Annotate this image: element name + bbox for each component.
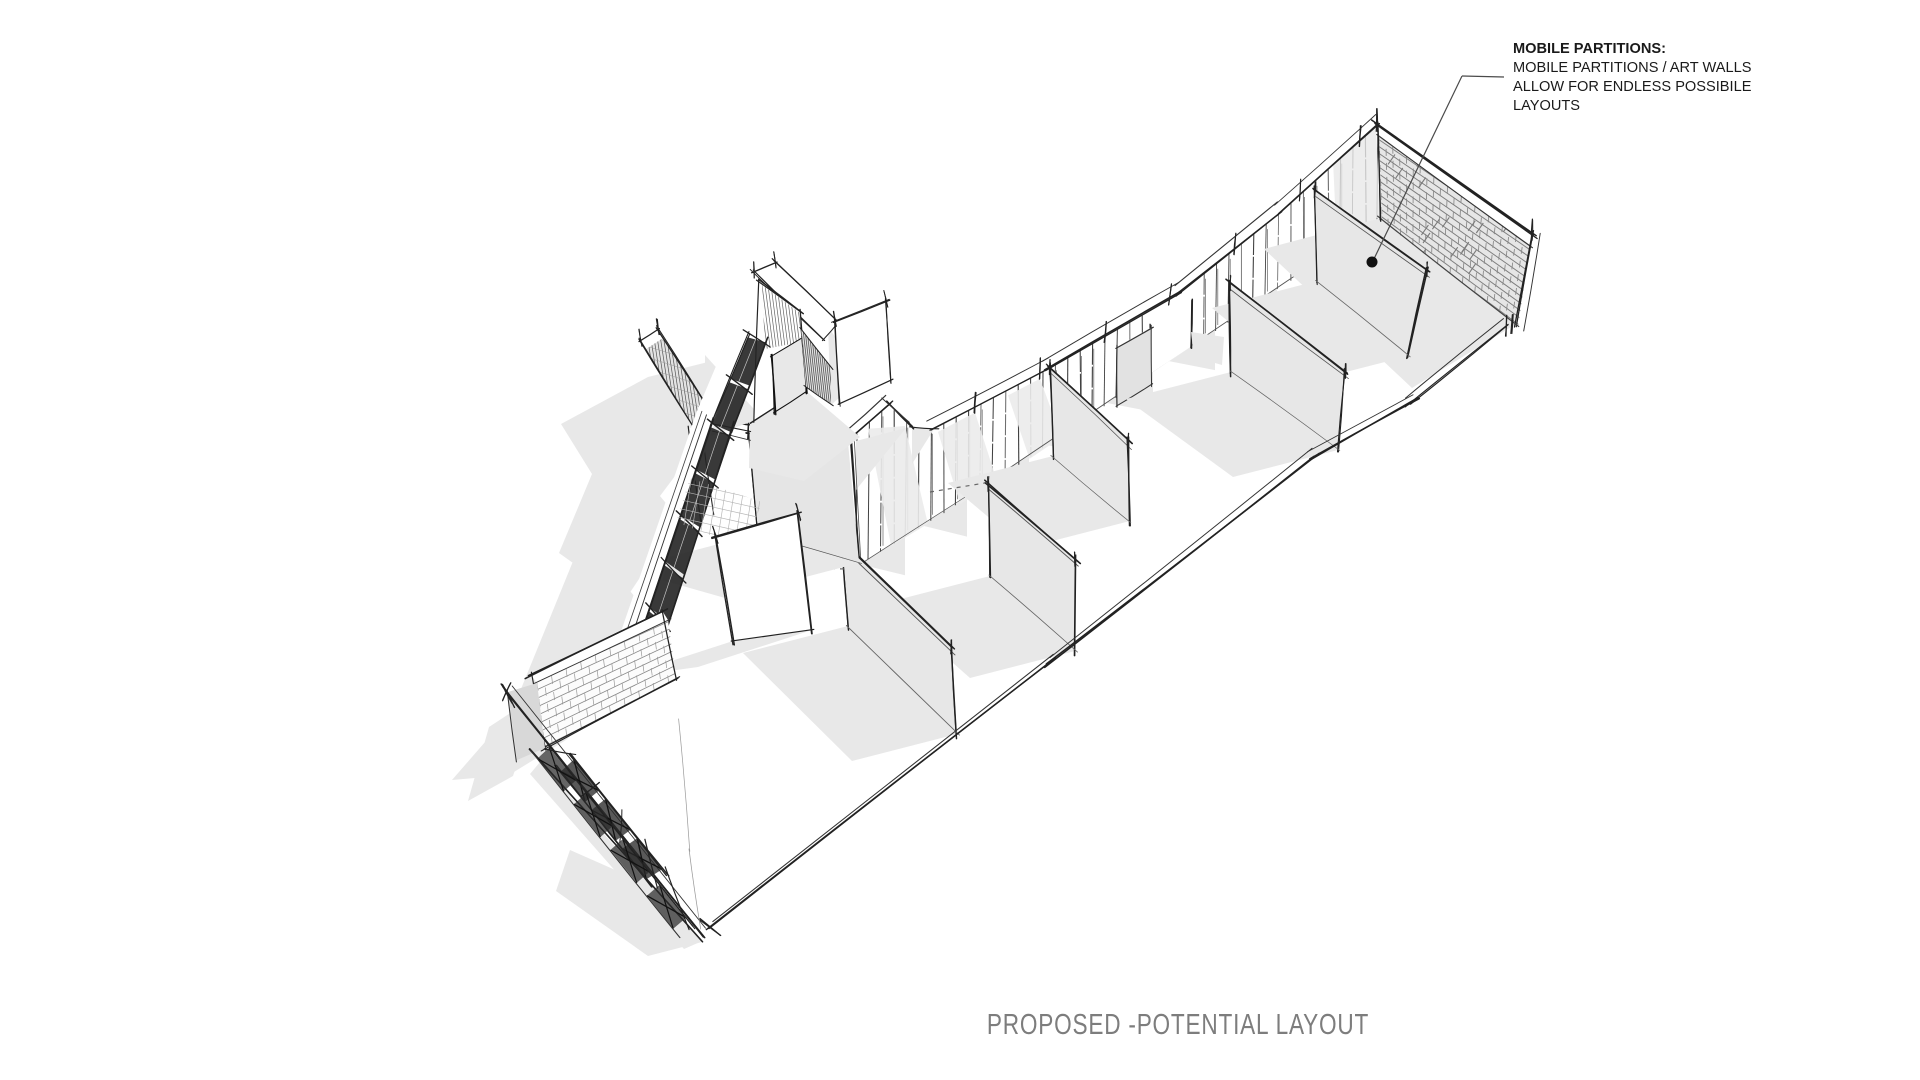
svg-text:MOBILE PARTITIONS / ART WALLS: MOBILE PARTITIONS / ART WALLS: [1513, 60, 1752, 76]
svg-text:MOBILE PARTITIONS:: MOBILE PARTITIONS:: [1513, 41, 1666, 57]
svg-text:LAYOUTS: LAYOUTS: [1513, 98, 1580, 114]
svg-text:ALLOW FOR ENDLESS POSSIBILE: ALLOW FOR ENDLESS POSSIBILE: [1513, 79, 1752, 95]
svg-text:PROPOSED -POTENTIAL LAYOUT: PROPOSED -POTENTIAL LAYOUT: [987, 1007, 1369, 1040]
